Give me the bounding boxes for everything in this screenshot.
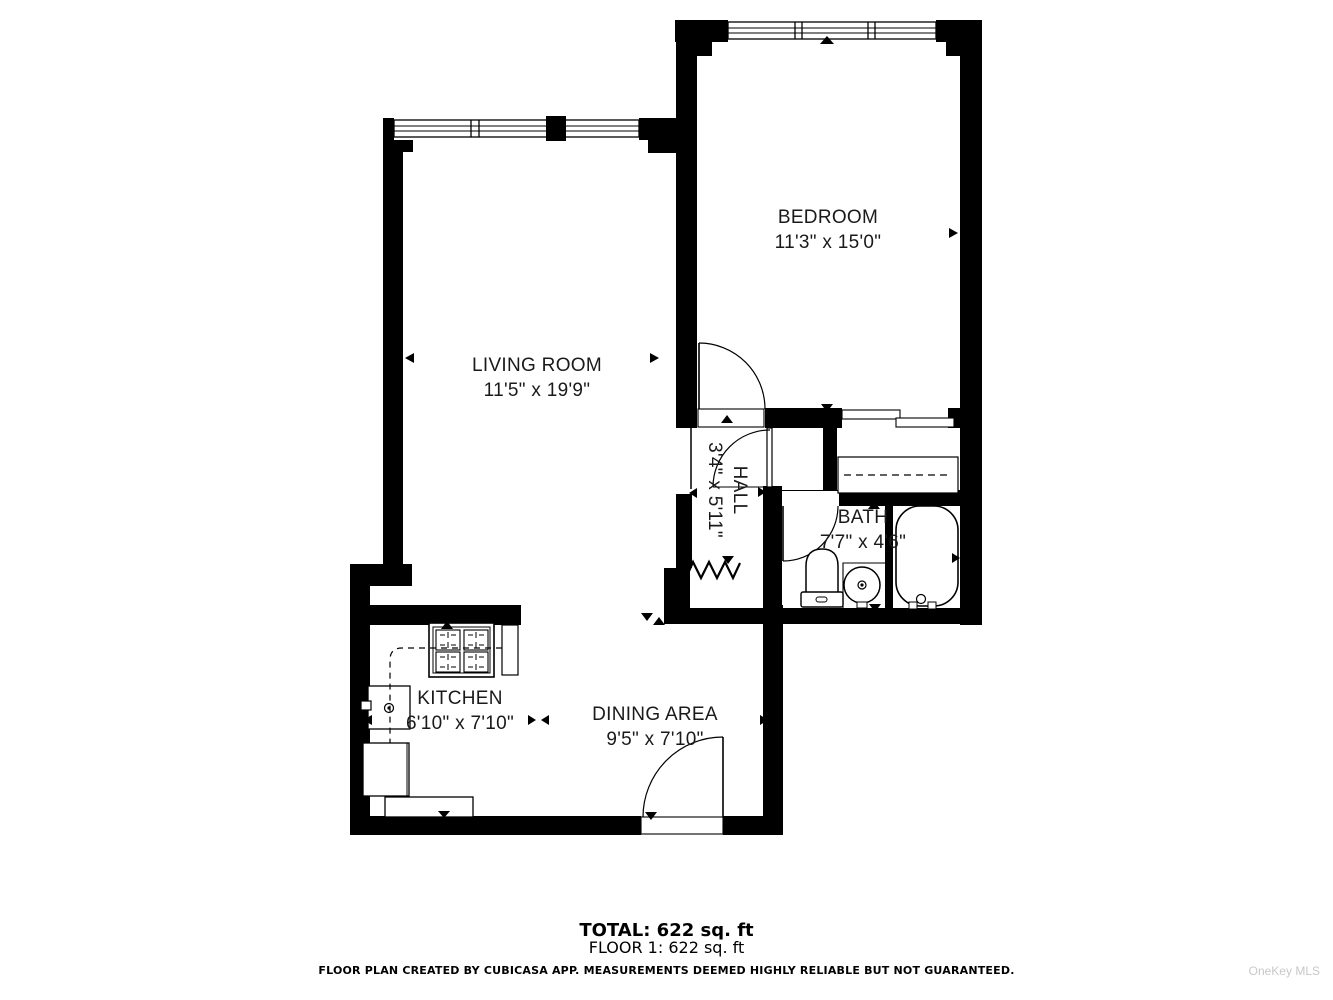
room-name: DINING AREA (592, 702, 718, 727)
watermark-onekey-mls: OneKey MLS (1249, 964, 1320, 978)
toilet (801, 549, 843, 607)
room-dimensions: 6'10" x 7'10" (406, 711, 514, 736)
room-name: BATH (820, 505, 906, 530)
bedroom-window (728, 20, 936, 42)
room-label-hall: HALL 3'4" x 5'11" (702, 442, 752, 538)
room-label-living-room: LIVING ROOM 11'5" x 19'9" (472, 353, 602, 403)
arrow-kitchen-right (528, 715, 536, 725)
kitchen-counter (502, 625, 518, 675)
room-dimensions: 11'5" x 19'9" (472, 378, 602, 403)
room-name: HALL (727, 442, 752, 538)
room-label-bedroom: BEDROOM 11'3" x 15'0" (775, 205, 882, 255)
stove (429, 623, 494, 677)
living-room-windows (394, 116, 639, 141)
room-dimensions: 11'3" x 15'0" (775, 230, 882, 255)
room-label-kitchen: KITCHEN 6'10" x 7'10" (406, 686, 514, 736)
room-label-bath: BATH 7'7" x 4'6" (820, 505, 906, 555)
refrigerator (363, 743, 409, 796)
arrow-bedroom-right (949, 228, 958, 238)
closet-shelf (838, 457, 958, 493)
base-cabinet (385, 797, 473, 817)
floor1-area-text: FLOOR 1: 622 sq. ft (0, 938, 1333, 957)
arrow-dining-top-up (653, 617, 665, 625)
arrow-living-right (650, 353, 659, 363)
accordion-door (686, 562, 740, 578)
room-dimensions: 9'5" x 7'10" (592, 727, 718, 752)
arrow-living-left (405, 353, 414, 363)
room-name: KITCHEN (406, 686, 514, 711)
floorplan-drawing (0, 0, 1333, 1000)
sink (843, 563, 885, 608)
room-name: BEDROOM (775, 205, 882, 230)
room-dimensions: 7'7" x 4'6" (820, 530, 906, 555)
floorplan-canvas: BEDROOM 11'3" x 15'0" LIVING ROOM 11'5" … (0, 0, 1333, 1000)
bedroom-door (698, 343, 765, 427)
room-dimensions: 3'4" x 5'11" (702, 442, 727, 538)
room-label-dining-area: DINING AREA 9'5" x 7'10" (592, 702, 718, 752)
closet-sliding-door (842, 410, 954, 427)
arrow-dining-left (541, 715, 549, 725)
room-name: LIVING ROOM (472, 353, 602, 378)
disclaimer-text: FLOOR PLAN CREATED BY CUBICASA APP. MEAS… (0, 964, 1333, 977)
arrow-dining-top-down (641, 613, 653, 621)
